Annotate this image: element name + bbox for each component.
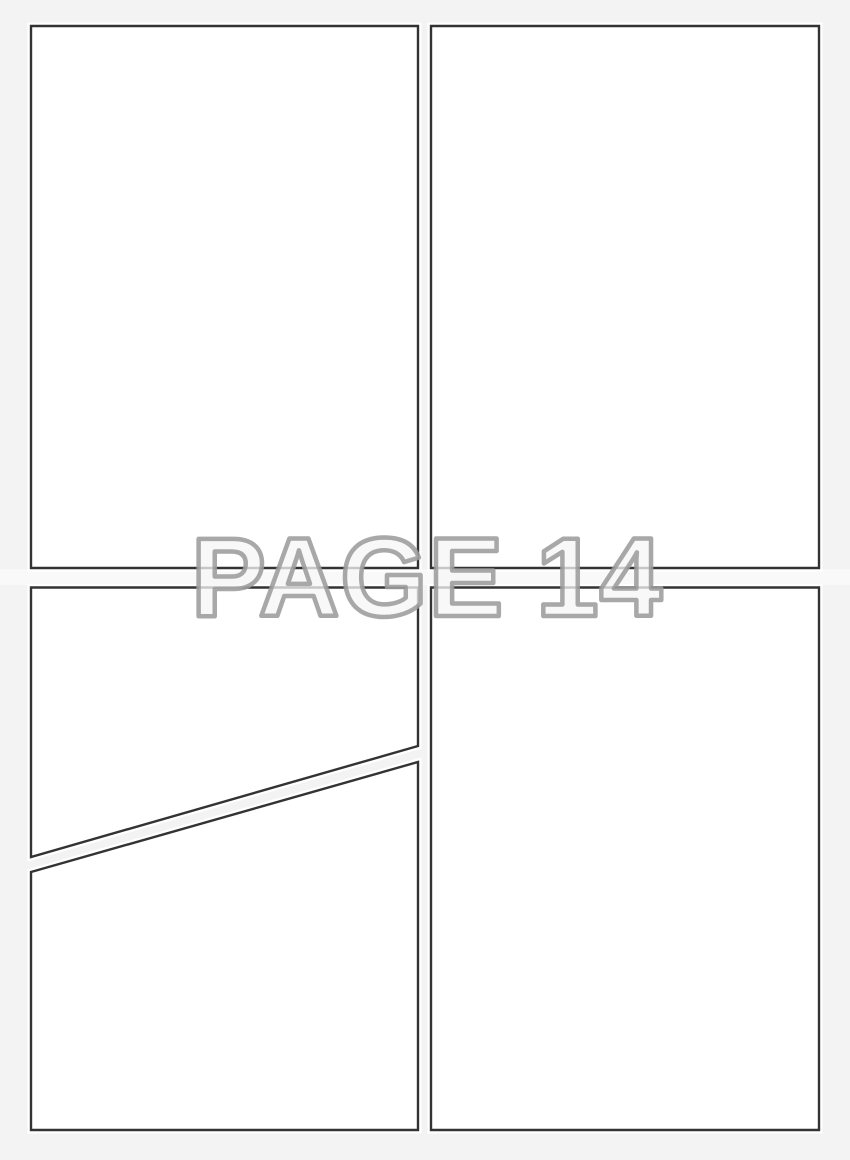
comic-panel-2 [431, 26, 819, 568]
comic-panel-1 [31, 26, 418, 568]
page-label: PAGE 14 [191, 515, 663, 640]
comic-panel-5 [431, 588, 819, 1131]
page-canvas: PAGE 14 [0, 0, 850, 1160]
comic-page-template: PAGE 14 [0, 0, 850, 1160]
